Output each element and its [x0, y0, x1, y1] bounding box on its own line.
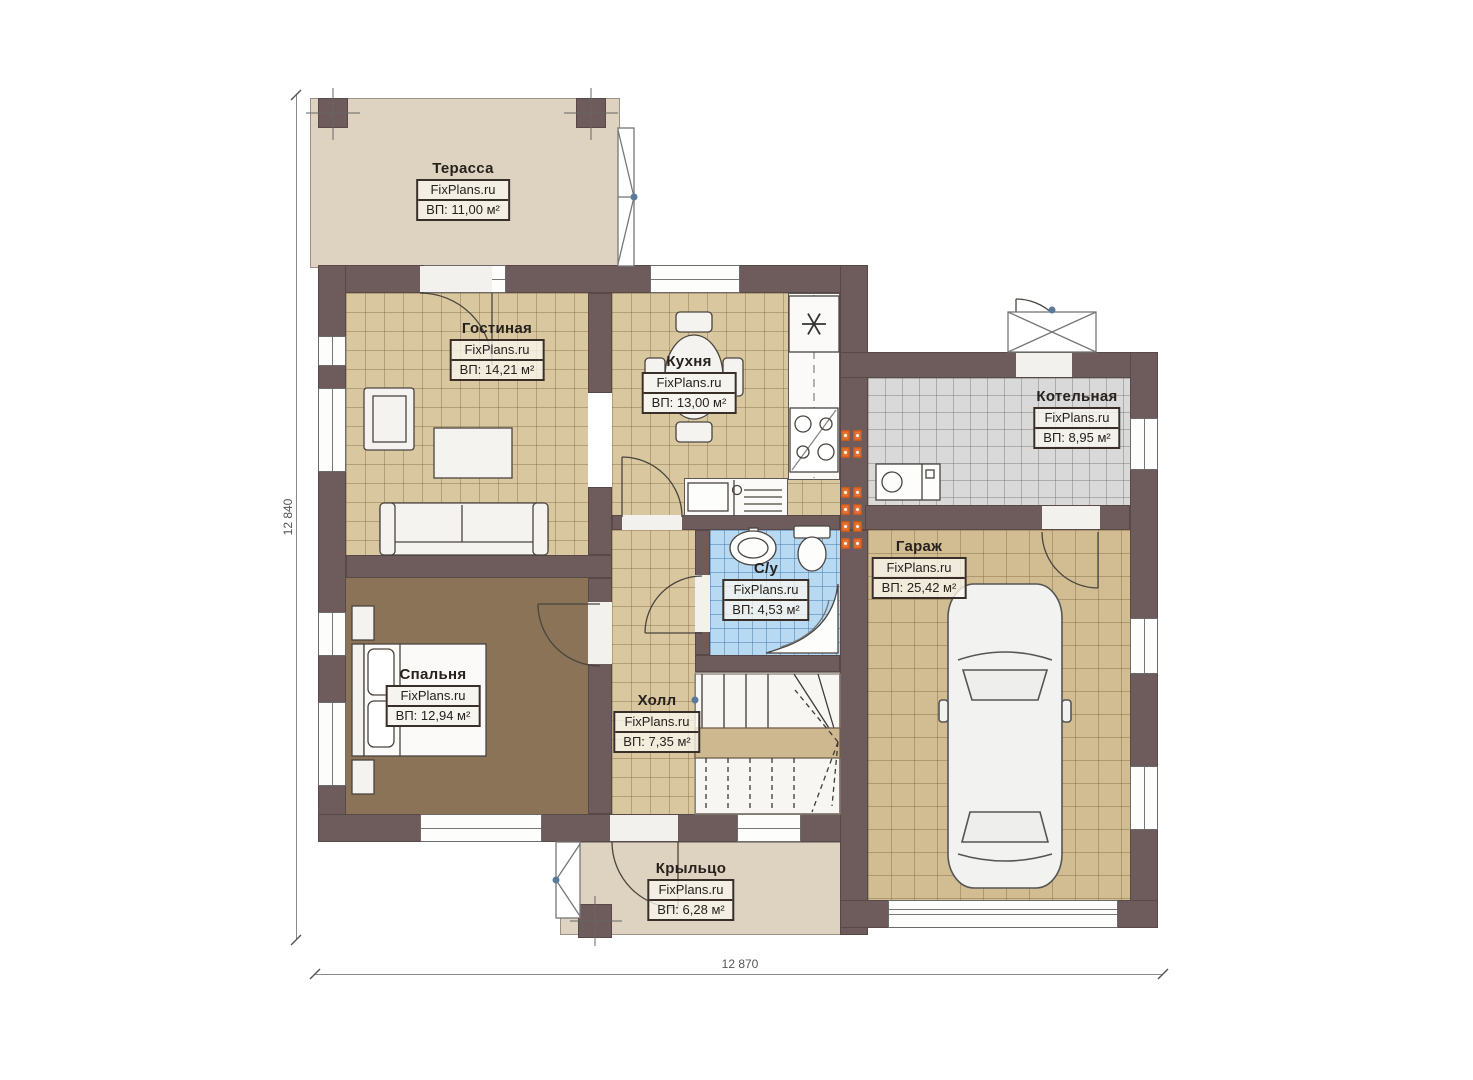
window-hall-bottom — [737, 814, 801, 842]
door-opening-entrance — [610, 815, 678, 841]
watermark-text: FixPlans.ru — [1035, 409, 1118, 429]
watermark-text: FixPlans.ru — [418, 181, 508, 201]
room-label-garage: Гараж FixPlans.ru ВП: 25,42 м² — [872, 538, 967, 599]
area-text: ВП: 6,28 м² — [649, 901, 732, 919]
door-opening-bathroom — [695, 575, 710, 632]
door-opening-bedroom — [588, 602, 612, 664]
area-text: ВП: 25,42 м² — [874, 579, 965, 597]
floor-plan: Терасса FixPlans.ru ВП: 11,00 м² Гостина… — [0, 0, 1473, 1080]
area-text: ВП: 14,21 м² — [452, 361, 543, 379]
terrace-column-right — [576, 98, 606, 128]
radiator — [841, 430, 862, 441]
watermark-text: FixPlans.ru — [644, 374, 735, 394]
watermark-text: FixPlans.ru — [874, 559, 965, 579]
room-label-kitchen: Кухня FixPlans.ru ВП: 13,00 м² — [642, 353, 737, 414]
window-bedroom-bottom — [420, 814, 542, 842]
watermark-text: FixPlans.ru — [649, 881, 732, 901]
door-arc-boiler-exterior — [1016, 299, 1069, 352]
dimension-line-bottom — [315, 974, 1163, 975]
door-opening-boiler-garage — [1042, 506, 1100, 529]
watermark-text: FixPlans.ru — [452, 341, 543, 361]
room-label-terrace: Терасса FixPlans.ru ВП: 11,00 м² — [416, 160, 510, 221]
kitchen-counter — [788, 293, 840, 480]
porch-column — [578, 904, 612, 938]
watermark-text: FixPlans.ru — [388, 687, 479, 707]
staircase-area — [695, 672, 840, 814]
room-label-living: Гостиная FixPlans.ru ВП: 14,21 м² — [450, 320, 545, 381]
terrace-column-left — [318, 98, 348, 128]
area-text: ВП: 4,53 м² — [724, 601, 807, 619]
window-garage-right-2 — [1130, 766, 1158, 830]
terrace-steps-icon — [618, 128, 638, 266]
window-boiler-right — [1130, 418, 1158, 470]
window-bedroom-left-2 — [318, 702, 346, 786]
room-title: Гараж — [872, 538, 967, 555]
room-title: Кухня — [642, 353, 737, 370]
area-text: ВП: 7,35 м² — [615, 733, 698, 751]
room-title: Гостиная — [450, 320, 545, 337]
radiator — [841, 447, 862, 458]
room-label-boiler: Котельная FixPlans.ru ВП: 8,95 м² — [1033, 388, 1120, 449]
window-kitchen-top — [650, 265, 740, 293]
area-text: ВП: 12,94 м² — [388, 707, 479, 725]
room-title: Котельная — [1033, 388, 1120, 405]
dimension-bottom-label: 12 870 — [710, 957, 770, 971]
window-bedroom-left-1 — [318, 612, 346, 656]
radiator — [841, 521, 862, 532]
area-text: ВП: 11,00 м² — [418, 201, 508, 219]
dimension-line-left — [296, 95, 297, 940]
room-label-bathroom: С/у FixPlans.ru ВП: 4,53 м² — [722, 560, 809, 621]
room-label-bedroom: Спальня FixPlans.ru ВП: 12,94 м² — [386, 666, 481, 727]
watermark-text: FixPlans.ru — [724, 581, 807, 601]
radiator — [841, 487, 862, 498]
radiator — [841, 538, 862, 549]
room-title: Спальня — [386, 666, 481, 683]
room-label-porch: Крыльцо FixPlans.ru ВП: 6,28 м² — [647, 860, 734, 921]
wall-bathroom-bottom — [695, 655, 840, 672]
door-opening-boiler-exterior — [1016, 353, 1072, 377]
area-text: ВП: 13,00 м² — [644, 394, 735, 412]
wall-garage-top — [840, 352, 1158, 378]
room-title: Терасса — [416, 160, 510, 177]
room-title: С/у — [722, 560, 809, 577]
watermark-text: FixPlans.ru — [615, 713, 698, 733]
boiler-steps-icon — [1008, 307, 1096, 353]
dimension-left-label: 12 840 — [281, 487, 295, 547]
wall-living-kitchen-bottom — [588, 487, 612, 555]
window-living-left — [318, 388, 346, 472]
room-title: Холл — [613, 692, 700, 709]
room-hall-floor — [612, 530, 695, 814]
wall-top-main — [318, 265, 868, 293]
door-opening-kitchen-hall — [622, 515, 682, 530]
garage-door — [888, 900, 1118, 928]
room-title: Крыльцо — [647, 860, 734, 877]
window-garage-right-1 — [1130, 618, 1158, 674]
room-label-hall: Холл FixPlans.ru ВП: 7,35 м² — [613, 692, 700, 753]
window-living-left-small — [318, 336, 346, 366]
door-opening-terrace — [420, 266, 492, 292]
kitchen-sink-counter — [684, 478, 788, 516]
wall-living-kitchen-top — [588, 293, 612, 393]
radiator — [841, 504, 862, 515]
area-text: ВП: 8,95 м² — [1035, 429, 1118, 447]
wall-hall-right — [840, 530, 868, 935]
wall-living-bedroom — [346, 555, 612, 578]
